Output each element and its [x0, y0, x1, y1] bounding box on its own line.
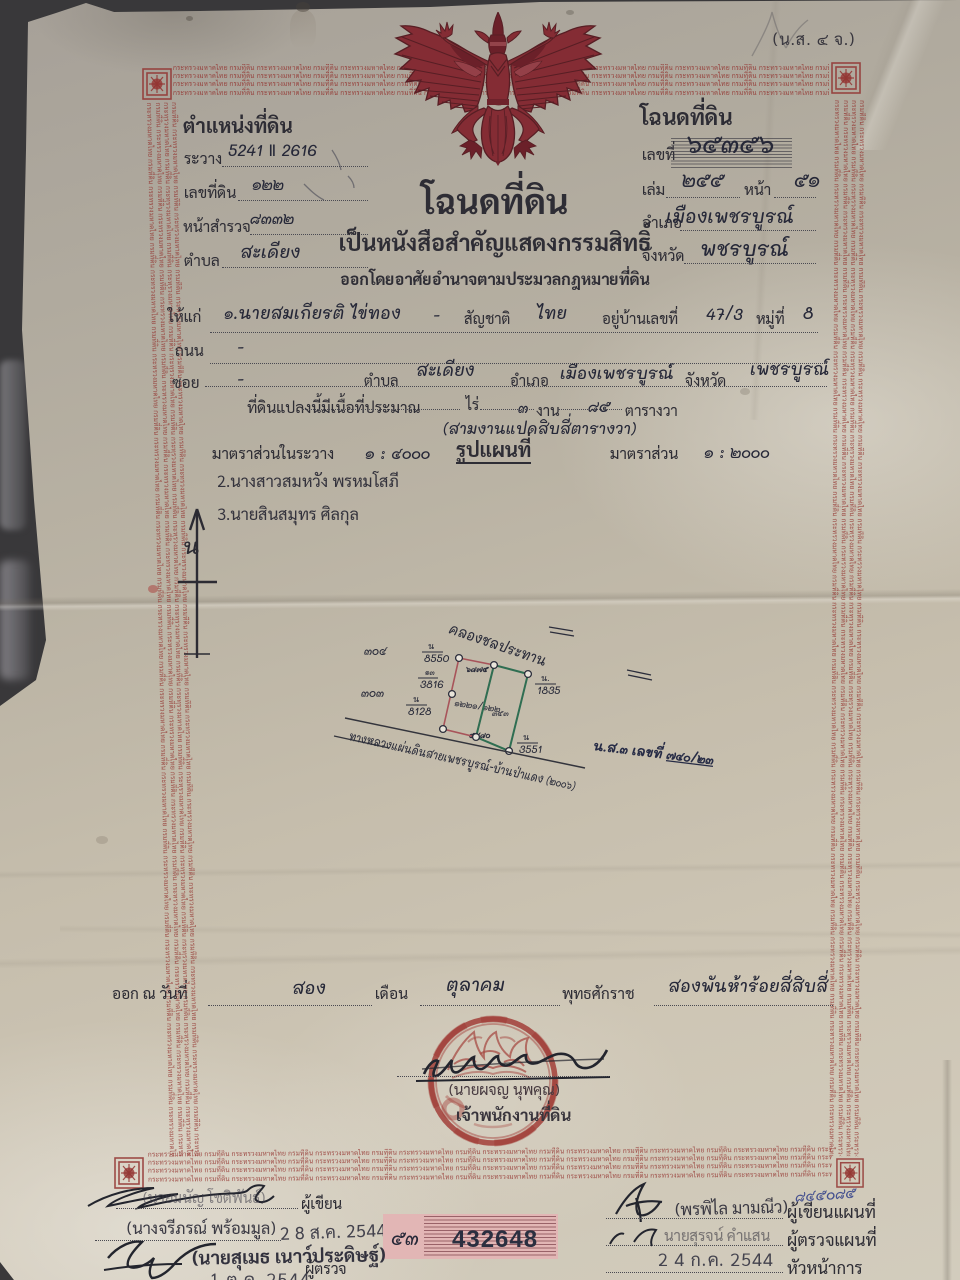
svg-text:๓๐๓: ๓๐๓ — [361, 685, 384, 701]
svg-text:๖๘๗๕: ๖๘๗๕ — [466, 664, 490, 675]
svg-text:๓๐๔: ๓๐๔ — [364, 643, 388, 659]
svg-text:๓๕๓: ๓๕๓ — [492, 708, 509, 719]
svg-text:น: น — [523, 732, 529, 742]
svg-text:๑๓: ๑๓ — [425, 667, 435, 677]
svg-text:น: น — [428, 641, 434, 651]
svg-text:8550: 8550 — [424, 651, 450, 665]
svg-text:3816: 3816 — [420, 677, 444, 691]
svg-text:คลองชลประทาน: คลองชลประทาน — [447, 619, 550, 670]
svg-text:ทางหลวงแผ่นดินสายเพชรบูรณ์-บ้า: ทางหลวงแผ่นดินสายเพชรบูรณ์-บ้านป่าแดง (๒… — [347, 727, 577, 795]
svg-text:8128: 8128 — [408, 704, 432, 718]
svg-text:น.: น. — [541, 673, 550, 683]
svg-text:3551: 3551 — [519, 742, 542, 756]
svg-text:น: น — [413, 694, 419, 704]
svg-text:น: น — [183, 533, 200, 560]
svg-text:1835: 1835 — [537, 683, 561, 697]
svg-text:น.ส.๓ เลขที่ ๗๔๐/๒๓: น.ส.๓ เลขที่ ๗๔๐/๒๓ — [593, 731, 716, 769]
